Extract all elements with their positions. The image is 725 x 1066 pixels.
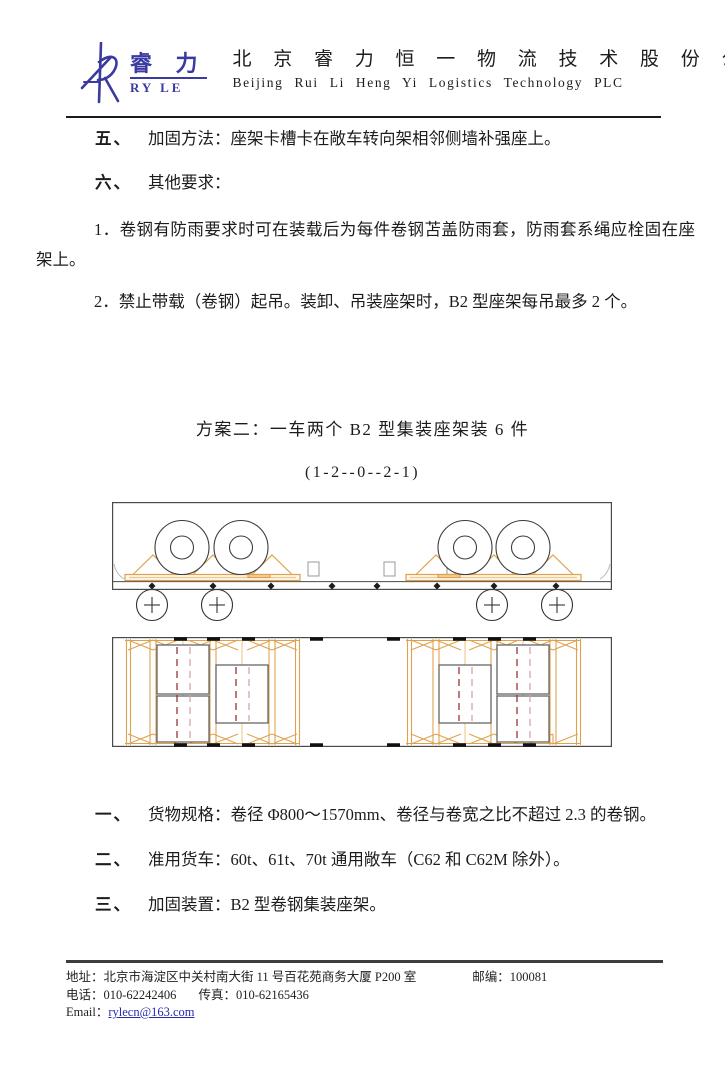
item-5-number: 五、 [95,129,132,148]
item-5: 五、加固方法：座架卡槽卡在敞车转向架相邻侧墙补强座上。 [95,127,695,151]
item-1-number: 一、 [95,805,132,824]
email-label: Email： [66,1005,108,1019]
item-1-text: 货物规格：卷径 Φ800～1570mm、卷径与卷宽之比不超过 2.3 的卷钢。 [148,805,656,824]
page-footer: 地址：北京市海淀区中关村南大街 11 号百花苑商务大厦 P200 室邮编：100… [66,960,663,1022]
company-name-en: Beijing Rui Li Heng Yi Logistics Technol… [233,74,725,92]
item-6: 六、其他要求： [95,171,695,195]
item-6-number: 六、 [95,173,132,192]
phone-value: 010-62242406 [104,988,177,1002]
item-3-text: 加固装置：B2 型卷钢集装座架。 [148,895,386,914]
company-name-block: 北 京 睿 力 恒 一 物 流 技 术 股 份 公 司 Beijing Rui … [233,48,725,92]
fax-label: 传真： [198,988,236,1002]
address-value: 北京市海淀区中关村南大街 11 号百花苑商务大厦 P200 室 [104,970,417,984]
note-2: 2．禁止带载（卷钢）起吊。装卸、吊装座架时，B2 型座架每吊最多 2 个。 [36,287,695,317]
item-2-number: 二、 [95,850,132,869]
wagon-side-view-diagram [112,502,612,624]
footer-email-row: Email：rylecn@163.com [66,1004,663,1022]
item-6-text: 其他要求： [148,173,231,192]
logo-en-label: RY LE [130,77,207,96]
postcode-label: 邮编： [472,970,510,984]
plan-code: (1-2--0--2-1) [0,464,725,482]
company-logo: 睿 力 RY LE [78,42,207,106]
address-label: 地址： [66,970,104,984]
company-name-cn: 北 京 睿 力 恒 一 物 流 技 术 股 份 公 司 [233,48,725,72]
phone-label: 电话： [66,988,104,1002]
wheels [137,590,573,621]
item-3-number: 三、 [95,895,132,914]
footer-address-row: 地址：北京市海淀区中关村南大街 11 号百花苑商务大厦 P200 室邮编：100… [66,969,663,987]
logo-r-icon [78,42,126,106]
item-2-text: 准用货车：60t、61t、70t 通用敞车（C62 和 C62M 除外）。 [148,850,570,869]
postcode-value: 100081 [510,970,548,984]
email-link[interactable]: rylecn@163.com [108,1005,194,1019]
note-1: 1．卷钢有防雨要求时可在装载后为每件卷钢苫盖防雨套，防雨套系绳应栓固在座架上。 [36,215,695,275]
fax-value: 010-62165436 [236,988,309,1002]
logo-text: 睿 力 RY LE [130,52,207,96]
footer-phone-row: 电话：010-62242406传真：010-62165436 [66,987,663,1005]
plan-title: 方案二：一车两个 B2 型集装座架装 6 件 [0,415,725,440]
item-5-text: 加固方法：座架卡槽卡在敞车转向架相邻侧墙补强座上。 [148,129,561,148]
page-header: 睿 力 RY LE 北 京 睿 力 恒 一 物 流 技 术 股 份 公 司 Be… [66,42,661,118]
logo-cn-label: 睿 力 [130,52,207,76]
item-2: 二、准用货车：60t、61t、70t 通用敞车（C62 和 C62M 除外）。 [95,848,695,872]
wagon-top-view-diagram [112,637,612,747]
item-3: 三、加固装置：B2 型卷钢集装座架。 [95,893,695,917]
item-1: 一、货物规格：卷径 Φ800～1570mm、卷径与卷宽之比不超过 2.3 的卷钢… [95,803,695,827]
